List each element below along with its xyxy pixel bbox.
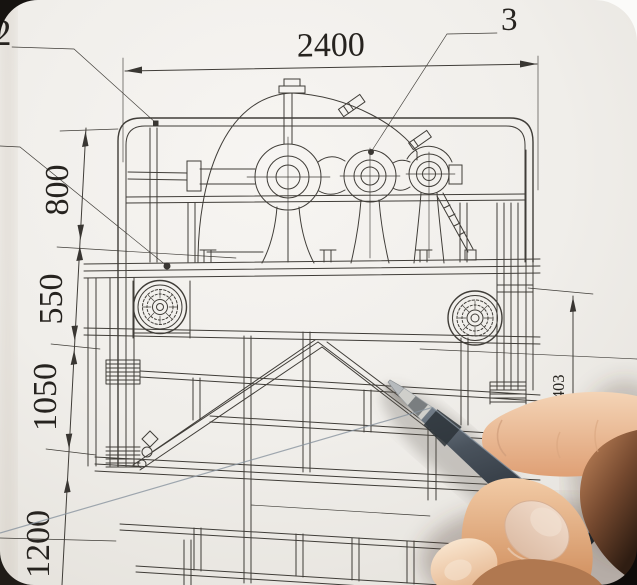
callout-label-3: 3	[501, 2, 518, 38]
dimension-label-1200: 1200	[20, 510, 57, 578]
scene: 2 3 2400 800 550 1050 1200 1403	[0, 0, 637, 585]
paper-edge-shade	[0, 0, 16, 585]
dimension-label-800: 800	[39, 165, 76, 216]
dimension-label-2400: 2400	[296, 26, 365, 64]
dimension-label-1050: 1050	[27, 363, 64, 431]
photo-of-engineering-drawing: 2 3 2400 800 550 1050 1200 1403	[0, 0, 637, 585]
dimension-label-550: 550	[33, 274, 70, 325]
